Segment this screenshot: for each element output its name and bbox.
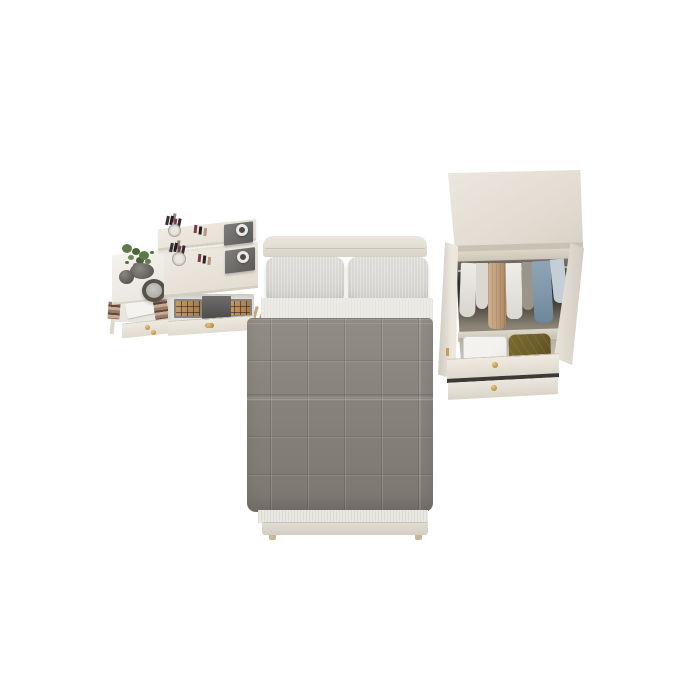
- bed-foot: [269, 535, 276, 540]
- decor-vase: [119, 270, 134, 284]
- wardrobe-hinge: [446, 348, 449, 356]
- wardrobe: [436, 166, 586, 398]
- bed-foot: [415, 535, 422, 540]
- footboard: [262, 522, 428, 535]
- eyeshadow-palette: [174, 299, 202, 318]
- brush-cup: [172, 252, 186, 266]
- potted-plant: [122, 244, 132, 253]
- quilted-blanket: [247, 318, 433, 512]
- hanging-garment-cream: [476, 263, 488, 309]
- hanging-garment-white: [459, 263, 477, 318]
- bedroom-furniture-render: [0, 0, 700, 700]
- drawer-knob: [151, 330, 156, 335]
- makeup-brushes: [165, 216, 170, 225]
- blanket-fold: [247, 394, 433, 402]
- wardrobe-top-panel: [448, 170, 583, 248]
- hanging-coat-tan: [488, 263, 506, 329]
- drawer-knob: [205, 323, 214, 328]
- round-mirror: [142, 279, 166, 302]
- headboard: [263, 236, 427, 257]
- brush-cup: [168, 224, 181, 237]
- hanging-shirt-white: [506, 263, 523, 319]
- drawer-knob: [145, 325, 150, 330]
- headboard-groove: [265, 248, 425, 249]
- drawer-knob: [491, 385, 497, 391]
- bed: [247, 234, 433, 540]
- drawer-knob: [492, 362, 498, 368]
